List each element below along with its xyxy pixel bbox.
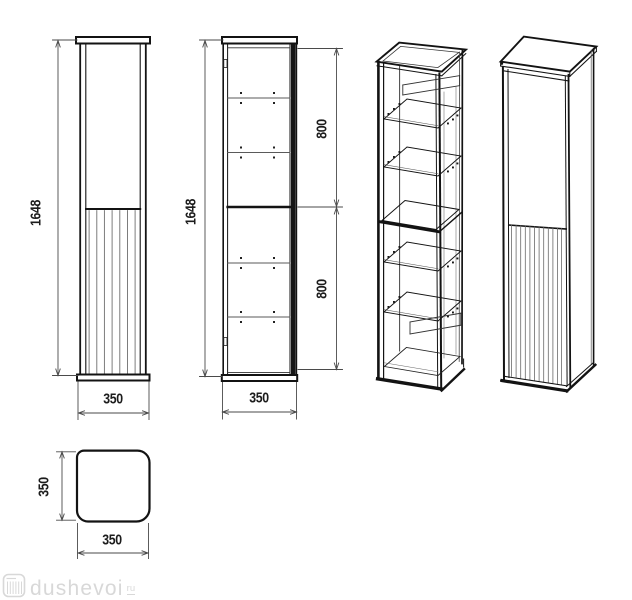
front-view-closed [76,37,150,381]
dimension-label-height-v2: 1648 [183,199,200,225]
hinge-mark-top [224,60,227,68]
dimension-label-width-v2: 350 [249,390,269,407]
iso-view-closed [500,37,596,392]
dimension-label-lower-800: 800 [314,279,331,299]
dimension-label-width-top-view: 350 [102,532,122,549]
watermark-site-name: dushevoi [30,579,124,598]
hinge-mark-bottom [224,338,227,346]
shower-cabin-icon [2,572,27,598]
dimension-label-width-v1: 350 [103,391,123,408]
technical-drawing-canvas: 1648 350 1648 350 800 800 350 350 dushev… [0,0,632,600]
watermark: dushevoi ru [2,572,135,598]
dimension-label-height-v1: 1648 [28,200,45,226]
dimension-label-upper-800: 800 [314,119,331,139]
front-view-closed-dimensions [53,40,150,420]
top-section-view [77,451,150,522]
front-view-interior [222,37,297,381]
door-slats-iso [512,225,562,385]
iso-view-open [377,43,466,391]
shelf-clips-iso [388,103,459,317]
front-view-interior-dimensions [200,40,343,419]
glass-shelves-iso [384,99,461,321]
watermark-domain-suffix: ru [127,584,135,596]
dimension-label-depth-top-view: 350 [36,477,53,497]
door-slats [89,211,135,374]
drawing-linework [0,0,632,600]
fixed-middle-shelf-iso [380,201,461,232]
